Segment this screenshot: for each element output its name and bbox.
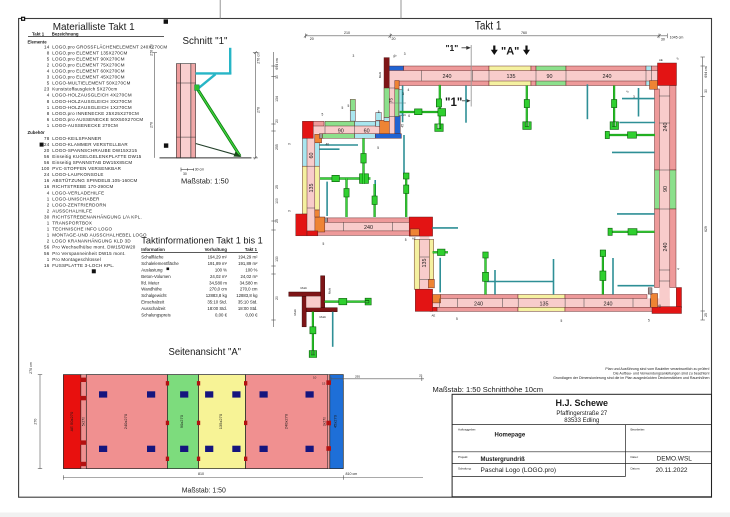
svg-text:16: 16 <box>44 178 50 183</box>
svg-text:20.11.2022: 20.11.2022 <box>656 467 688 474</box>
svg-text:18:00 Std.: 18:00 Std. <box>238 306 258 311</box>
svg-text:24,02 m³: 24,02 m³ <box>241 274 259 279</box>
svg-text:Zubehör: Zubehör <box>28 130 46 135</box>
svg-text:Multi: Multi <box>293 309 297 316</box>
svg-text:60: 60 <box>309 153 315 159</box>
svg-text:135: 135 <box>540 301 549 307</box>
svg-text:5: 5 <box>378 110 380 114</box>
svg-text:240: 240 <box>663 243 669 252</box>
svg-text:0,00 €: 0,00 € <box>215 313 228 318</box>
svg-text:"A": "A" <box>501 46 519 58</box>
svg-text:Bearbeiter:: Bearbeiter: <box>631 428 646 432</box>
svg-text:194,29 m²: 194,29 m² <box>238 254 258 259</box>
svg-text:Schalungspreis: Schalungspreis <box>141 313 170 318</box>
svg-text:Multi: Multi <box>320 315 327 319</box>
svg-text:5: 5 <box>456 317 458 321</box>
svg-text:LOGO.pro ELEMENT 45X270CM: LOGO.pro ELEMENT 45X270CM <box>52 75 124 80</box>
svg-text:60: 60 <box>364 129 370 135</box>
svg-text:Taktinformationen Takt 1 bis: Taktinformationen Takt 1 bis 1 <box>141 236 262 246</box>
svg-text:lfd. Meter: lfd. Meter <box>141 280 159 285</box>
svg-text:5: 5 <box>47 81 50 86</box>
svg-text:Ausschalzeit: Ausschalzeit <box>141 306 166 311</box>
svg-text:30: 30 <box>275 75 279 79</box>
svg-text:Datei:: Datei: <box>631 455 639 459</box>
svg-text:240: 240 <box>603 74 612 80</box>
svg-text:5x270: 5x270 <box>82 417 86 426</box>
svg-text:LOGO-KLAMMER VERSTELLBAR: LOGO-KLAMMER VERSTELLBAR <box>52 142 128 147</box>
svg-text:Information: Information <box>141 247 165 252</box>
svg-text:14: 14 <box>44 44 50 49</box>
svg-text:90: 90 <box>338 129 344 135</box>
svg-text:MONTAGE-UND AUSSCHALHEBEL LOGO: MONTAGE-UND AUSSCHALHEBEL LOGO <box>52 233 147 238</box>
svg-text:1045 cm: 1045 cm <box>670 36 684 40</box>
svg-text:240: 240 <box>663 123 669 132</box>
svg-text:5: 5 <box>403 114 407 116</box>
svg-text:90: 90 <box>663 186 669 192</box>
svg-text:240: 240 <box>364 225 373 231</box>
svg-text:240x270: 240x270 <box>284 413 289 429</box>
svg-text:LOGO-ZENTRIERDORN: LOGO-ZENTRIERDORN <box>52 202 106 207</box>
svg-text:20: 20 <box>44 148 50 153</box>
svg-text:240: 240 <box>604 301 613 307</box>
svg-text:1: 1 <box>47 196 50 201</box>
svg-text:1: 1 <box>47 123 50 128</box>
svg-text:20: 20 <box>310 37 314 41</box>
svg-text:Schalfläche: Schalfläche <box>141 254 164 259</box>
svg-text:75: 75 <box>388 98 393 104</box>
svg-text:15: 15 <box>322 382 326 386</box>
svg-text:12883,8 kg: 12883,8 kg <box>206 293 228 298</box>
svg-text:LOGO-SPANNSCHRAUBE DW15X215: LOGO-SPANNSCHRAUBE DW15X215 <box>52 148 137 153</box>
svg-text:270 cm: 270 cm <box>29 362 33 374</box>
svg-text:20: 20 <box>275 119 279 123</box>
svg-text:Einseitig KUGELGELENKPLATTE DW: Einseitig KUGELGELENKPLATTE DW15 <box>52 154 142 159</box>
svg-text:1: 1 <box>47 105 50 110</box>
svg-text:Auftraggeber:: Auftraggeber: <box>458 428 476 432</box>
svg-text:10: 10 <box>313 375 317 379</box>
svg-text:295: 295 <box>355 375 360 379</box>
svg-text:4: 4 <box>408 88 410 92</box>
svg-text:20: 20 <box>275 296 279 300</box>
svg-text:56: 56 <box>44 251 50 256</box>
svg-text:3: 3 <box>288 143 292 145</box>
svg-text:LOGO-HOLZAUSGLEICH 1X270CM: LOGO-HOLZAUSGLEICH 1X270CM <box>52 105 132 110</box>
svg-text:TECHNISCHE INFO LOGO: TECHNISCHE INFO LOGO <box>52 227 112 232</box>
svg-text:6: 6 <box>47 117 50 122</box>
svg-text:56: 56 <box>44 160 50 165</box>
svg-text:Schnitt "1": Schnitt "1" <box>183 36 228 47</box>
svg-text:134: 134 <box>275 96 279 102</box>
svg-text:AE: AE <box>412 237 416 241</box>
svg-text:18:00 Std.: 18:00 Std. <box>207 306 227 311</box>
svg-text:DEMO.WSL: DEMO.WSL <box>657 455 693 462</box>
svg-text:83533 Edling: 83533 Edling <box>564 418 599 424</box>
svg-text:35:10 Std.: 35:10 Std. <box>207 300 227 305</box>
svg-text:35:10 Std.: 35:10 Std. <box>238 300 258 305</box>
svg-text:694 cm: 694 cm <box>704 66 708 77</box>
svg-text:TRANSPORTBOX: TRANSPORTBOX <box>52 221 92 226</box>
svg-text:Beton-Volumen: Beton-Volumen <box>141 274 171 279</box>
svg-text:Multi: Multi <box>378 72 382 79</box>
svg-text:760: 760 <box>521 31 527 35</box>
svg-text:135: 135 <box>422 259 428 268</box>
svg-text:270: 270 <box>33 419 37 425</box>
svg-text:AE: AE <box>659 58 663 62</box>
svg-text:2: 2 <box>47 202 50 207</box>
svg-text:Datum:: Datum: <box>631 466 641 470</box>
svg-text:12883,8 kg: 12883,8 kg <box>236 293 258 298</box>
svg-text:135: 135 <box>507 74 516 80</box>
svg-text:23: 23 <box>44 87 50 92</box>
svg-text:124: 124 <box>41 142 49 147</box>
svg-text:4: 4 <box>47 93 50 98</box>
svg-text:Projekt:: Projekt: <box>458 455 468 459</box>
svg-text:40: 40 <box>326 142 330 146</box>
svg-text:Pro Wechselhülse mont. DW15/DW: Pro Wechselhülse mont. DW15/DW20 <box>52 245 136 250</box>
svg-text:1: 1 <box>47 227 50 232</box>
svg-text:Multi: Multi <box>327 288 331 295</box>
svg-text:Bezeichnung: Bezeichnung <box>52 31 79 36</box>
svg-text:255: 255 <box>275 144 279 150</box>
svg-text:25: 25 <box>275 185 279 189</box>
svg-text:3: 3 <box>402 92 404 96</box>
svg-text:4: 4 <box>47 69 50 74</box>
svg-text:Grundlagen der Dimensionierung: Grundlagen der Dimensionierung sind die … <box>553 376 709 380</box>
svg-text:LOGO.pro ELEMENT 90X270CM: LOGO.pro ELEMENT 90X270CM <box>52 56 124 61</box>
svg-text:135: 135 <box>309 184 315 193</box>
svg-text:LOGO.pro ELEMENT 75X270CM: LOGO.pro ELEMENT 75X270CM <box>52 62 124 67</box>
svg-text:810 cm: 810 cm <box>346 472 358 476</box>
svg-text:H.J. Schewe: H.J. Schewe <box>556 398 609 408</box>
svg-text:45: 45 <box>658 304 662 308</box>
svg-text:Die Aufbau- und Verwendungsanl: Die Aufbau- und Verwendungsanleitungen s… <box>613 371 709 375</box>
svg-text:30 cm: 30 cm <box>195 168 204 172</box>
svg-text:3: 3 <box>47 75 50 80</box>
svg-text:25: 25 <box>275 219 279 223</box>
svg-text:Maßstab: 1:50: Maßstab: 1:50 <box>182 486 226 495</box>
svg-text:34,580 m: 34,580 m <box>240 280 258 285</box>
svg-text:RICHTSTREBENANHÄNGUNG L/A KPL.: RICHTSTREBENANHÄNGUNG L/A KPL. <box>52 213 142 219</box>
svg-text:30: 30 <box>704 89 708 93</box>
svg-text:ABSTÜTZUNG SPINDELB.105-160CM: ABSTÜTZUNG SPINDELB.105-160CM <box>52 177 137 183</box>
svg-text:90: 90 <box>547 74 553 80</box>
svg-text:Pfaffingerstraße 27: Pfaffingerstraße 27 <box>556 411 608 417</box>
svg-text:694 cm: 694 cm <box>275 58 279 69</box>
svg-text:130: 130 <box>275 256 279 262</box>
svg-text:1: 1 <box>47 233 50 238</box>
svg-text:LOGO-LAUFKONSOLE: LOGO-LAUFKONSOLE <box>52 172 103 177</box>
svg-text:24,02 m³: 24,02 m³ <box>210 274 228 279</box>
svg-text:LOGO.pro ELEMENT 135X270CM: LOGO.pro ELEMENT 135X270CM <box>52 50 127 55</box>
svg-text:270 cm: 270 cm <box>149 44 153 56</box>
svg-text:4: 4 <box>47 190 50 195</box>
svg-text:LOGO-KEILSPANNER: LOGO-KEILSPANNER <box>52 136 102 141</box>
svg-text:6: 6 <box>408 114 410 118</box>
svg-text:5: 5 <box>323 242 325 246</box>
svg-text:3: 3 <box>404 52 406 56</box>
svg-text:2: 2 <box>47 62 50 67</box>
svg-text:100: 100 <box>275 198 279 204</box>
svg-text:5: 5 <box>561 319 563 323</box>
svg-text:5: 5 <box>322 113 324 117</box>
svg-text:AE: AE <box>432 314 436 318</box>
svg-text:Plan und Ausführung sind vom B: Plan und Ausführung sind vom Bauleiter v… <box>605 367 709 371</box>
svg-text:240x270: 240x270 <box>123 413 128 429</box>
svg-text:Pro Montageschlüssel: Pro Montageschlüssel <box>52 257 101 262</box>
svg-text:78: 78 <box>44 136 50 141</box>
svg-text:Multi: Multi <box>301 286 308 290</box>
svg-text:LOGO KRANANHÄNGUNG KLD 3D: LOGO KRANANHÄNGUNG KLD 3D <box>52 238 131 244</box>
svg-text:PVC-STOPFEN VERSENKBAR: PVC-STOPFEN VERSENKBAR <box>52 166 121 171</box>
svg-text:Einschalzeit: Einschalzeit <box>141 300 165 305</box>
svg-text:Maßstab: 1:50: Maßstab: 1:50 <box>181 176 229 185</box>
svg-text:8: 8 <box>47 50 50 55</box>
svg-text:Schalgewicht: Schalgewicht <box>141 293 167 298</box>
svg-text:20: 20 <box>392 37 396 41</box>
svg-text:8: 8 <box>47 99 50 104</box>
svg-text:56: 56 <box>44 154 50 159</box>
svg-text:3x270: 3x270 <box>323 417 327 426</box>
svg-text:Takt 1: Takt 1 <box>245 247 258 252</box>
svg-text:30: 30 <box>661 38 665 42</box>
svg-text:30: 30 <box>44 214 50 219</box>
svg-text:24: 24 <box>44 172 50 177</box>
svg-text:Pro Verspanneinheit DW15 mont.: Pro Verspanneinheit DW15 mont. <box>52 251 125 256</box>
svg-text:270,0 cm: 270,0 cm <box>209 287 227 292</box>
svg-text:2: 2 <box>47 239 50 244</box>
svg-text:LOGO.pro INNENECKE 25X25X270CM: LOGO.pro INNENECKE 25X25X270CM <box>52 111 139 116</box>
svg-text:Einseitig SPANNSTAB DW15X85CM: Einseitig SPANNSTAB DW15X85CM <box>52 160 132 165</box>
svg-text:135x270: 135x270 <box>218 413 223 429</box>
svg-text:191,89 m²: 191,89 m² <box>208 261 228 266</box>
svg-text:100 %: 100 % <box>245 267 257 272</box>
svg-text:FUSSPLATTE 3-LOCH KPL.: FUSSPLATTE 3-LOCH KPL. <box>52 263 114 268</box>
svg-text:191,89 m²: 191,89 m² <box>238 261 258 266</box>
svg-text:45: 45 <box>400 124 404 128</box>
svg-text:5: 5 <box>648 319 650 323</box>
svg-text:LOGO.pro ELEMENT 60X270CM: LOGO.pro ELEMENT 60X270CM <box>52 69 124 74</box>
svg-text:3: 3 <box>353 54 355 58</box>
svg-text:270: 270 <box>256 107 260 113</box>
svg-text:16: 16 <box>44 184 50 189</box>
svg-text:56: 56 <box>44 245 50 250</box>
svg-text:270 cm: 270 cm <box>256 52 260 64</box>
svg-text:LOGO-UNISCHABER: LOGO-UNISCHABER <box>52 196 100 201</box>
svg-text:5: 5 <box>47 56 50 61</box>
svg-text:LOGO-AUSSENECKE 270CM: LOGO-AUSSENECKE 270CM <box>52 123 118 128</box>
svg-text:Takt 1: Takt 1 <box>32 31 45 36</box>
svg-text:Auslastung: Auslastung <box>141 267 163 272</box>
svg-text:LOGO-HOLZAUSGLEICH 3X270CM: LOGO-HOLZAUSGLEICH 3X270CM <box>52 99 132 104</box>
svg-text:30: 30 <box>183 172 187 176</box>
svg-text:Schalung:: Schalung: <box>458 466 472 470</box>
svg-text:AUSSCHALHILFE: AUSSCHALHILFE <box>52 208 92 213</box>
svg-text:210: 210 <box>344 31 350 35</box>
svg-text:45x270: 45x270 <box>333 414 338 428</box>
svg-text:1: 1 <box>47 257 50 262</box>
svg-text:629: 629 <box>704 226 708 232</box>
svg-text:1: 1 <box>47 221 50 226</box>
svg-text:"1": "1" <box>446 43 459 53</box>
svg-text:Schalelementfläche: Schalelementfläche <box>141 261 179 266</box>
svg-text:Kunststoffausgleich 5X270cm: Kunststoffausgleich 5X270cm <box>52 87 117 92</box>
svg-text:100: 100 <box>41 166 49 171</box>
svg-text:5: 5 <box>377 146 379 150</box>
svg-text:Mustergrundriß: Mustergrundriß <box>481 457 526 463</box>
svg-text:AE 50x270: AE 50x270 <box>69 411 74 431</box>
svg-text:Paschal Logo (LOGO.pro): Paschal Logo (LOGO.pro) <box>481 467 557 474</box>
svg-text:Wandhöhe: Wandhöhe <box>141 287 162 292</box>
svg-text:34,580 m: 34,580 m <box>209 280 227 285</box>
svg-text:100 %: 100 % <box>215 267 227 272</box>
svg-text:LOGO.pro AUSSENECKE 50X50X270C: LOGO.pro AUSSENECKE 50X50X270CM <box>52 117 143 122</box>
svg-text:5: 5 <box>405 238 407 242</box>
svg-text:Vorhaltung: Vorhaltung <box>205 247 228 252</box>
svg-text:Maßstab: 1:50 Schnitthöhe 10: Maßstab: 1:50 Schnitthöhe 10cm <box>433 385 544 394</box>
svg-text:270: 270 <box>150 122 154 128</box>
svg-text:8: 8 <box>47 111 50 116</box>
svg-text:Seitenansicht "A": Seitenansicht "A" <box>169 347 242 358</box>
svg-text:25: 25 <box>704 313 708 317</box>
svg-text:240: 240 <box>443 74 452 80</box>
svg-text:RICHTSTREBE 170-290CM: RICHTSTREBE 170-290CM <box>52 184 113 189</box>
svg-text:25: 25 <box>419 373 423 377</box>
svg-text:Takt 1: Takt 1 <box>475 21 502 33</box>
svg-text:3: 3 <box>633 95 635 99</box>
svg-text:LOGO-MULTIELEMENT 50X270CM: LOGO-MULTIELEMENT 50X270CM <box>52 81 130 86</box>
svg-text:5: 5 <box>342 106 344 110</box>
svg-text:194,29 m²: 194,29 m² <box>208 254 228 259</box>
svg-text:270,0 cm: 270,0 cm <box>240 287 258 292</box>
svg-text:LOGO-HOLZAUSGLEICH 4X270CM: LOGO-HOLZAUSGLEICH 4X270CM <box>52 93 132 98</box>
svg-text:"1": "1" <box>445 97 462 109</box>
svg-text:0,00 €: 0,00 € <box>246 313 259 318</box>
svg-text:Homepage: Homepage <box>495 433 526 439</box>
svg-text:2: 2 <box>47 208 50 213</box>
svg-text:810: 810 <box>198 472 204 476</box>
svg-text:3: 3 <box>288 210 292 212</box>
svg-text:5: 5 <box>348 104 350 108</box>
svg-text:4: 4 <box>677 268 681 270</box>
svg-text:90x270: 90x270 <box>179 414 184 428</box>
svg-text:240: 240 <box>474 301 483 307</box>
svg-text:LOGO-VERLADEHILFE: LOGO-VERLADEHILFE <box>52 190 104 195</box>
svg-text:16: 16 <box>44 263 50 268</box>
